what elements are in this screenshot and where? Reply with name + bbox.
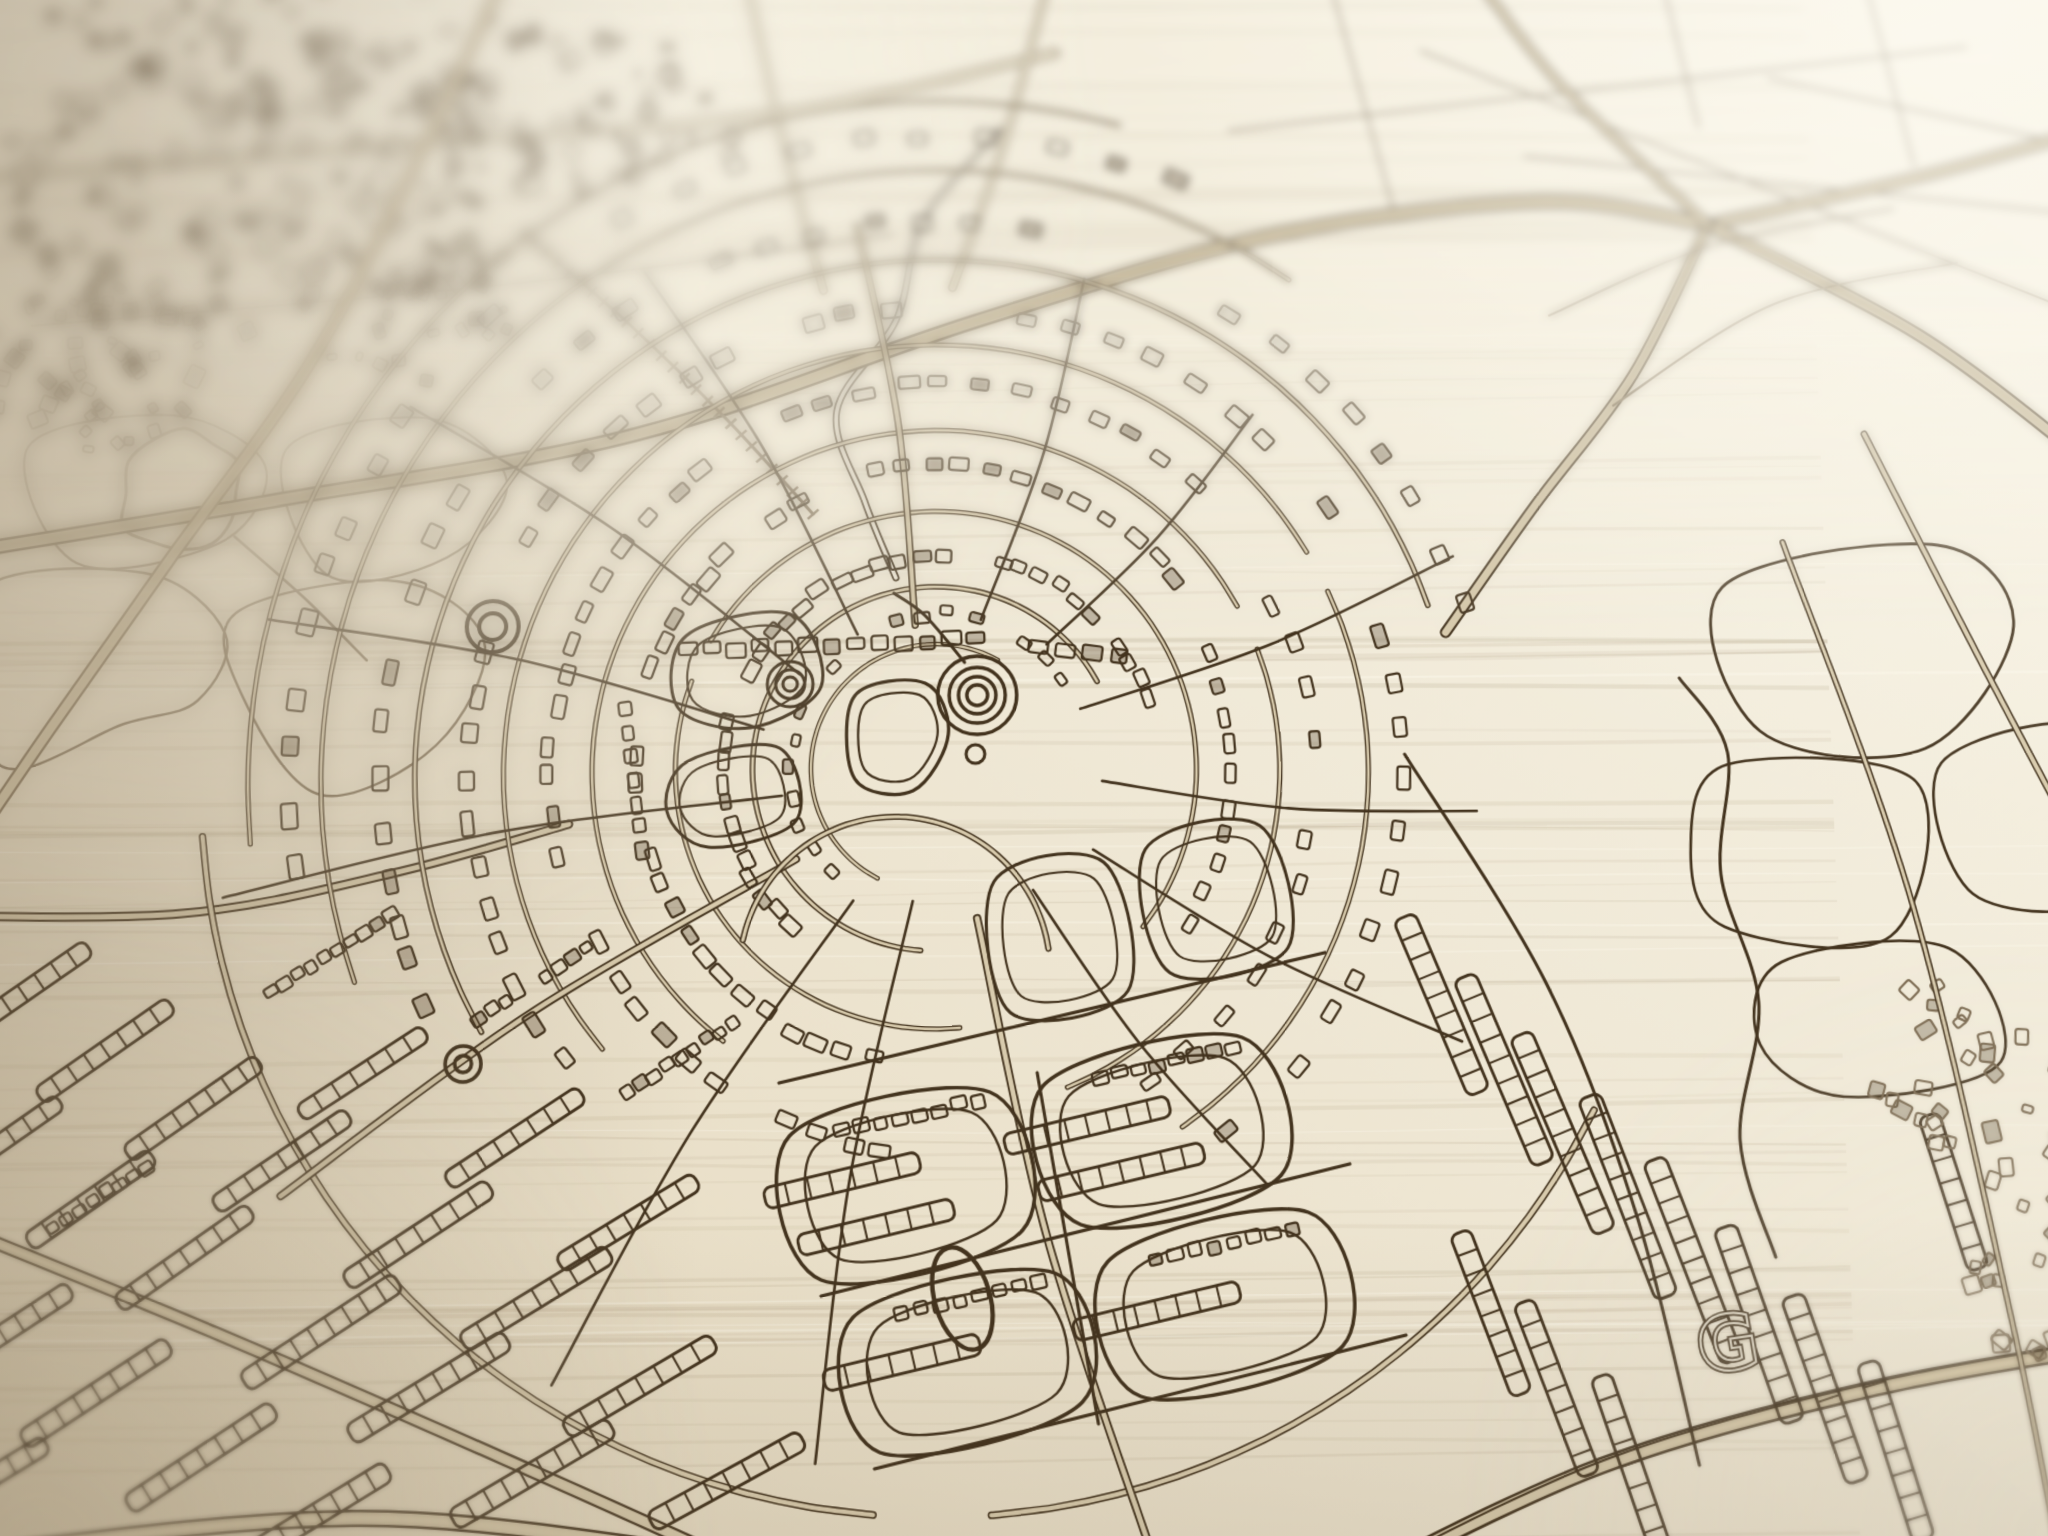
wooden-map-photo: GG [0, 0, 2048, 1536]
perspective-stage: GG [0, 0, 2048, 1536]
engraved-city-map: GG [0, 0, 2048, 1536]
topcenter-highlight-overlay [0, 0, 2048, 1536]
